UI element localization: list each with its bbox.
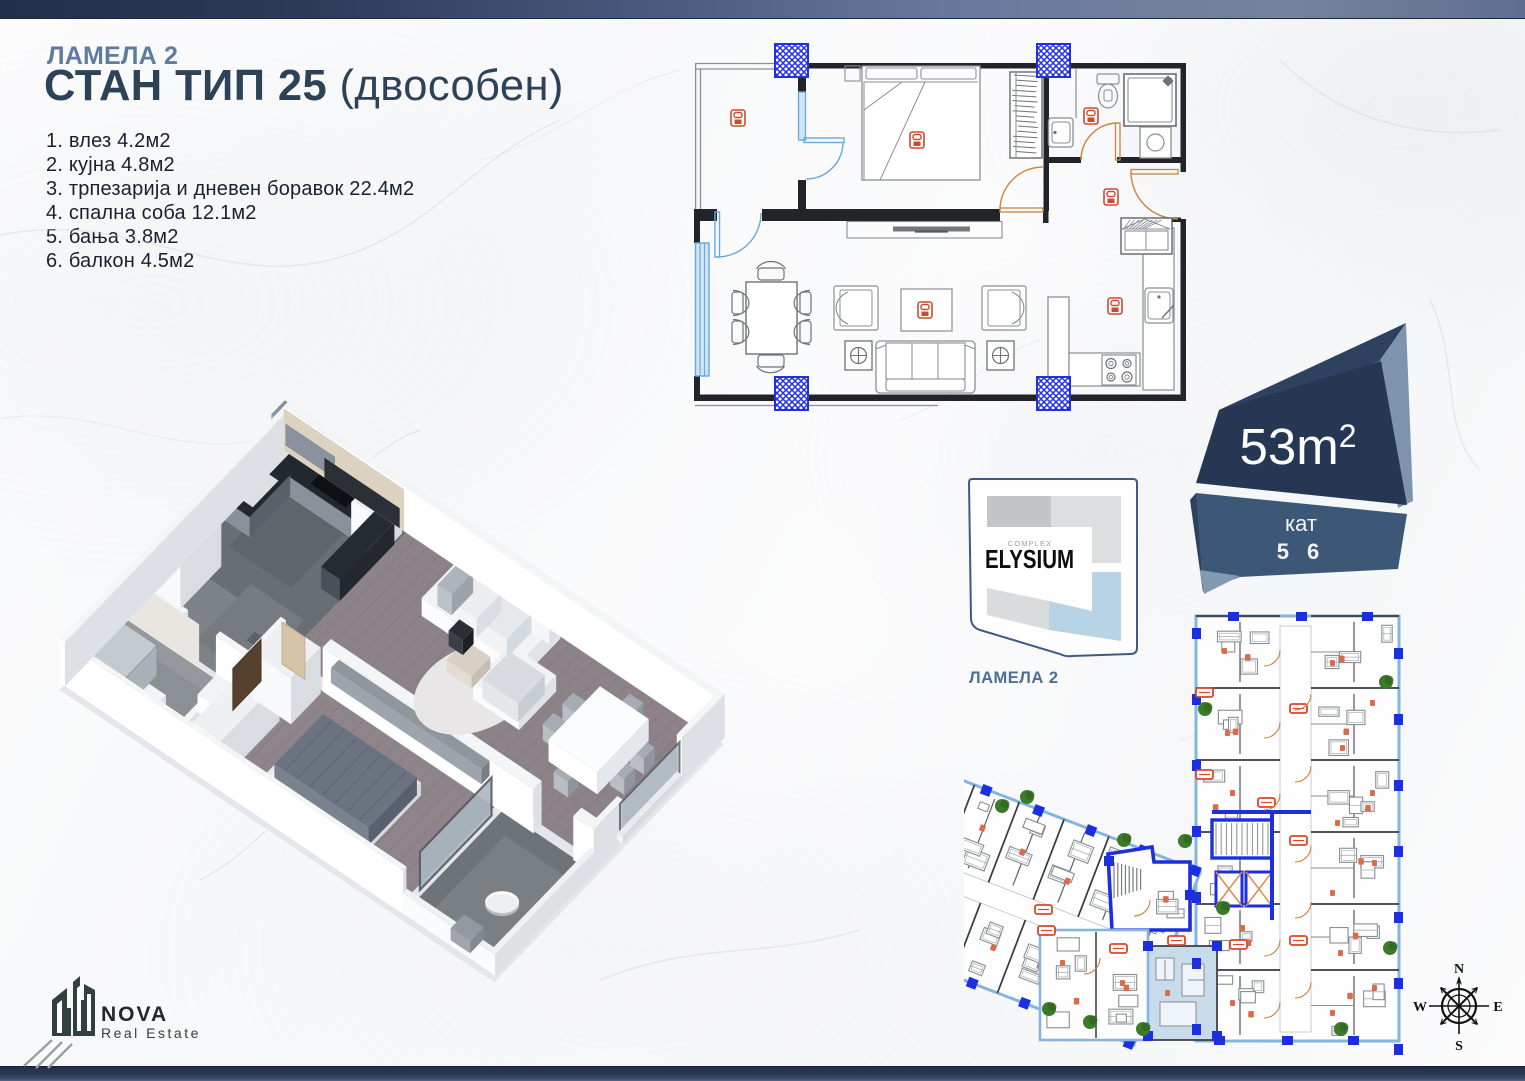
svg-text:ELYSIUM: ELYSIUM (985, 544, 1074, 574)
svg-text:S: S (1455, 1039, 1463, 1054)
svg-text:5 6: 5 6 (1277, 539, 1326, 564)
svg-text:кат: кат (1285, 511, 1317, 536)
svg-text:ЛАМЕЛА 2: ЛАМЕЛА 2 (969, 669, 1059, 687)
svg-text:E: E (1493, 1000, 1502, 1015)
svg-text:Real Estate: Real Estate (101, 1025, 201, 1041)
svg-text:W: W (1413, 1000, 1427, 1015)
svg-text:NOVA: NOVA (101, 1003, 168, 1026)
svg-text:N: N (1454, 962, 1464, 977)
